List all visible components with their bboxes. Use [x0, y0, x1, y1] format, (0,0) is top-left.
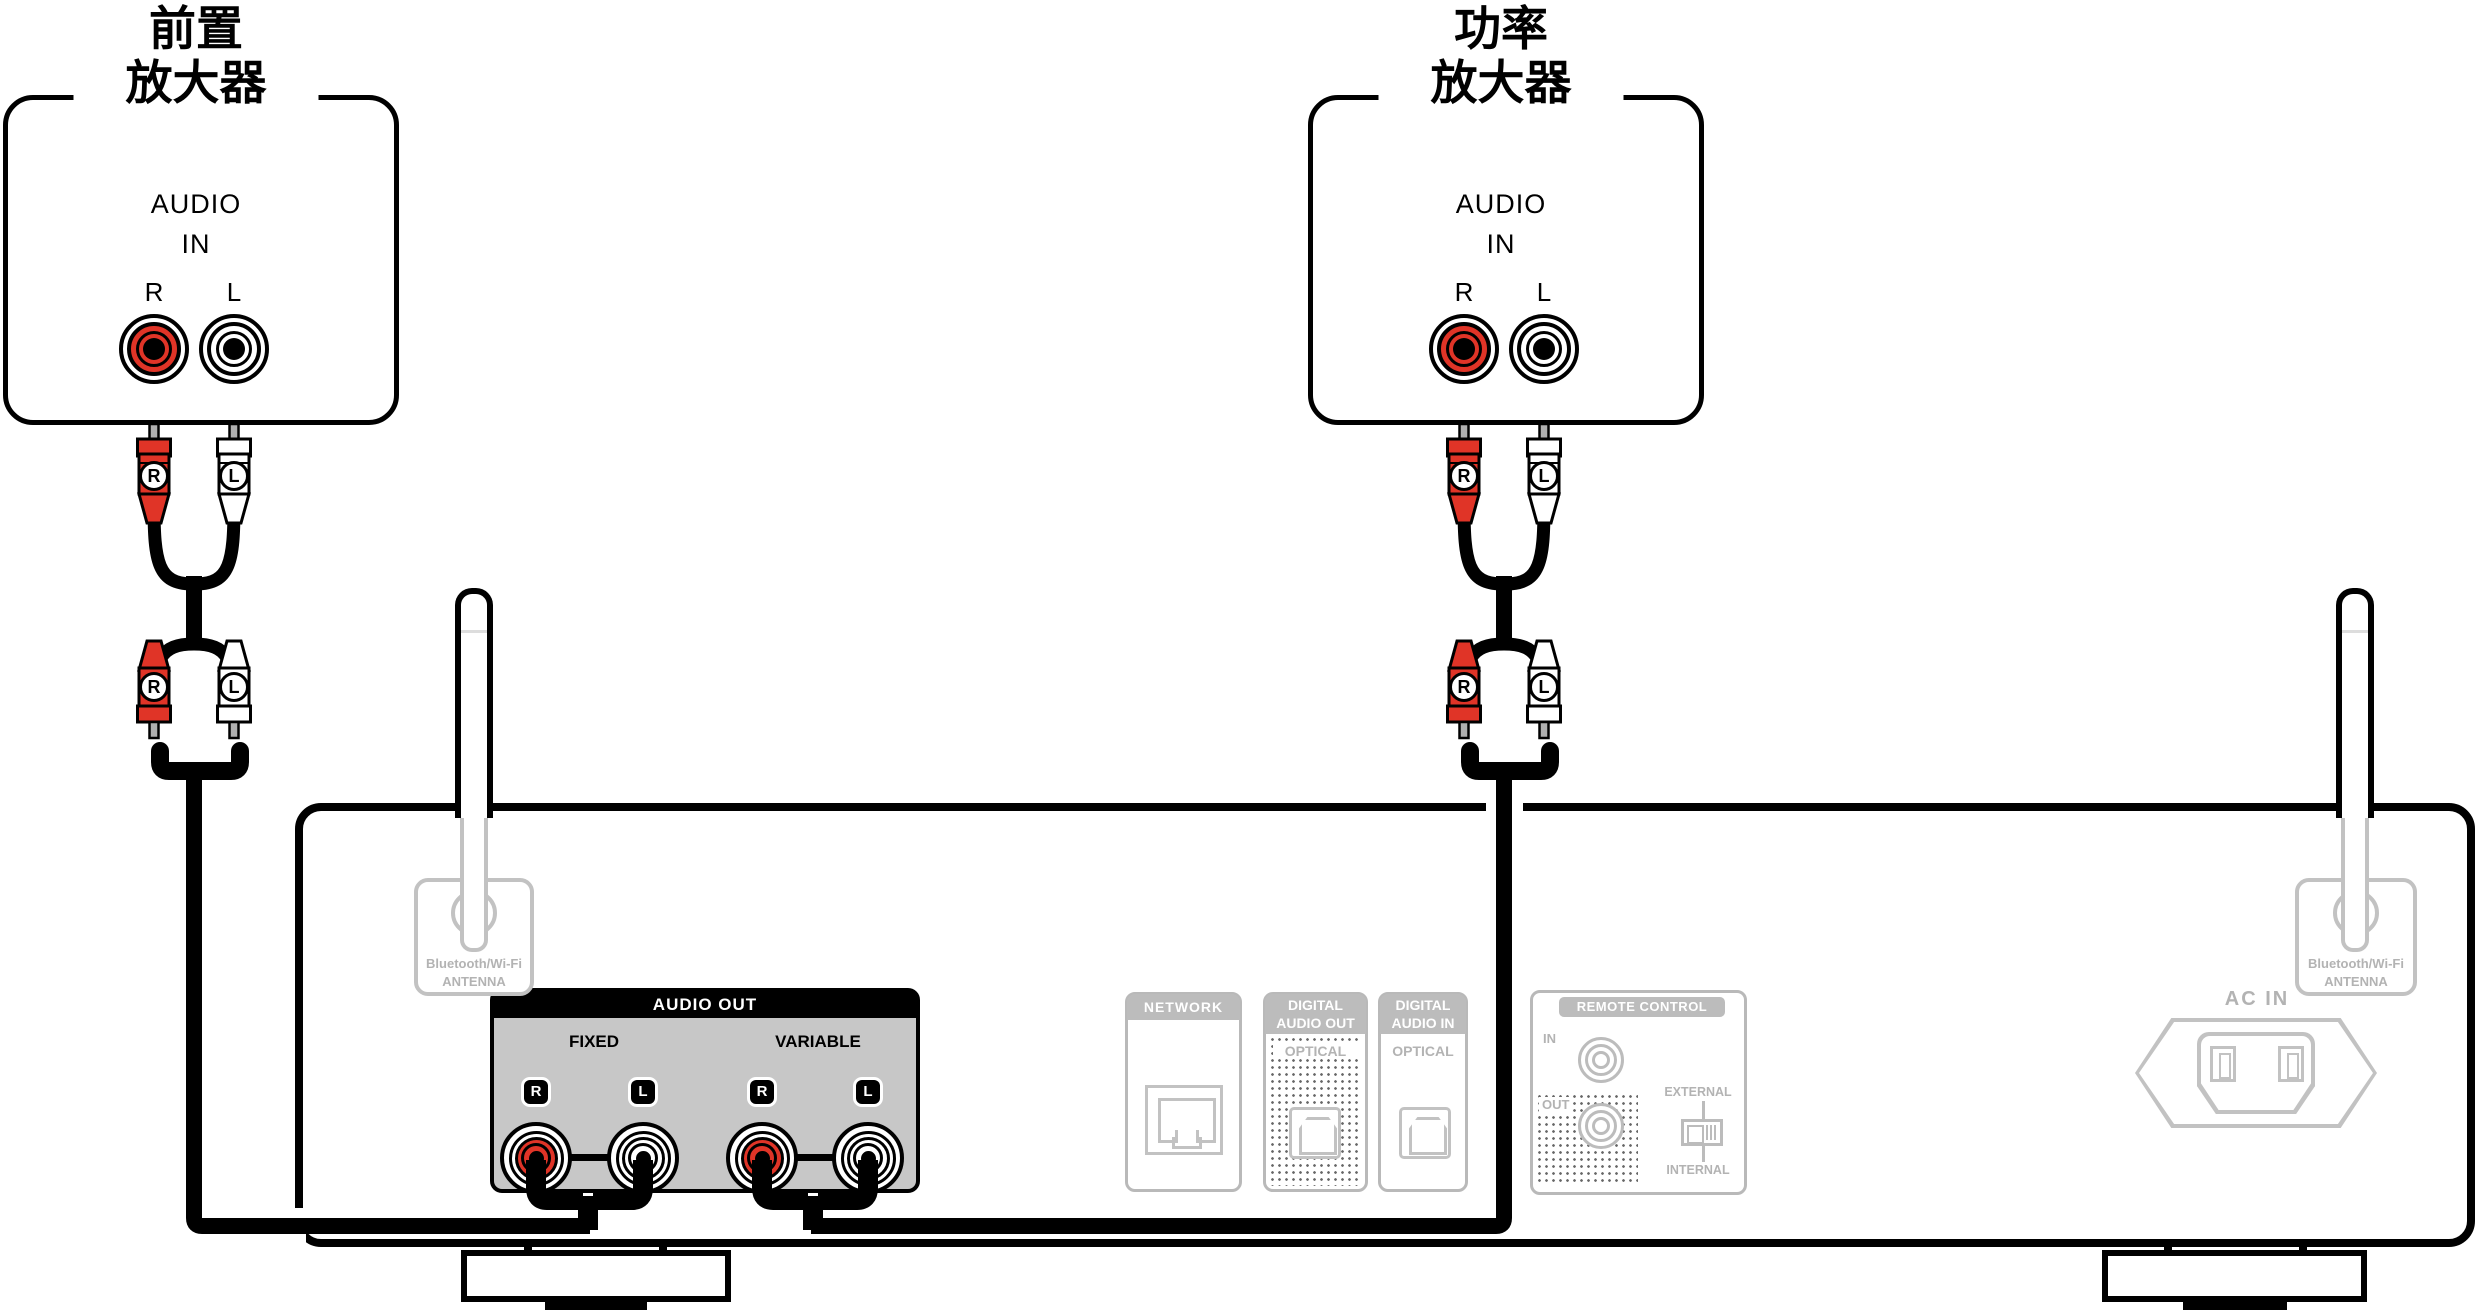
remote-external-label: EXTERNAL [1653, 1085, 1743, 1099]
power-amp-box [1308, 95, 1704, 425]
right-foot [2102, 1250, 2367, 1302]
power-amp-audio-in-r-jack[interactable] [1429, 314, 1499, 384]
svg-text:L: L [1539, 677, 1550, 697]
variable-l-jack[interactable] [832, 1122, 904, 1194]
fixed-l-badge: L [631, 1080, 655, 1104]
network-title: NETWORK [1127, 994, 1240, 1020]
remote-internal-label: INTERNAL [1653, 1163, 1743, 1177]
rca-plug-up-red-left[interactable]: R [138, 424, 171, 523]
digital-out-optical-label: OPTICAL [1273, 1043, 1358, 1059]
digital-audio-out-title: DIGITAL AUDIO OUT [1265, 994, 1366, 1034]
toslink-in-icon[interactable] [1399, 1107, 1451, 1159]
fixed-r-badge: R [524, 1080, 548, 1104]
digital-in-optical-label: OPTICAL [1381, 1043, 1465, 1059]
right-foot-base [2183, 1300, 2287, 1310]
rca-plug-up-white-right[interactable]: L [1528, 424, 1561, 523]
digital-audio-out-panel: DIGITAL AUDIO OUT OPTICAL [1263, 992, 1368, 1192]
wifi-antenna-left[interactable] [455, 588, 493, 818]
digital-audio-in-title: DIGITAL AUDIO IN [1380, 994, 1466, 1034]
variable-label: VARIABLE [758, 1032, 878, 1052]
variable-r-badge: R [750, 1080, 774, 1104]
ethernet-port-icon[interactable] [1145, 1085, 1223, 1155]
antenna-label-left-line2: ANTENNA [418, 974, 530, 989]
svg-text:R: R [148, 466, 161, 486]
preamp-audio-in-r-jack[interactable] [119, 314, 189, 384]
remote-out-jack[interactable] [1578, 1103, 1624, 1149]
preamp-title: 前置 放大器 [74, 2, 319, 110]
digital-audio-in-panel: DIGITAL AUDIO IN OPTICAL [1378, 992, 1468, 1192]
left-foot-base [545, 1300, 647, 1310]
svg-text:L: L [1539, 466, 1550, 486]
rca-plug-down-white-right[interactable]: L [1528, 641, 1561, 738]
variable-l-badge: L [856, 1080, 880, 1104]
ac-in-label: AC IN [2190, 988, 2324, 1011]
preamp-audio-label: AUDIO [151, 189, 242, 220]
power-amp-audio-in-l-jack[interactable] [1509, 314, 1579, 384]
svg-text:L: L [229, 466, 240, 486]
antenna-label-right-line1: Bluetooth/Wi-Fi [2299, 956, 2413, 971]
svg-text:R: R [1458, 677, 1471, 697]
remote-control-panel: REMOTE CONTROL IN OUT EXTERNAL INTERNAL [1530, 990, 1747, 1195]
ac-inlet[interactable] [2135, 1018, 2377, 1128]
svg-text:L: L [229, 677, 240, 697]
preamp-l-label: L [227, 277, 241, 308]
antenna-label-left-line1: Bluetooth/Wi-Fi [418, 956, 530, 971]
power-amp-l-label: L [1537, 277, 1551, 308]
rca-plug-down-white-left[interactable]: L [218, 641, 251, 738]
network-panel: NETWORK [1125, 992, 1242, 1192]
remote-control-title: REMOTE CONTROL [1559, 997, 1725, 1017]
power-amp-audio-label: AUDIO [1456, 189, 1547, 220]
switch-stem-bottom [1702, 1146, 1705, 1162]
toslink-out-icon[interactable] [1289, 1107, 1341, 1159]
antenna-ghost-left [460, 810, 488, 952]
preamp-audio-in-l-jack[interactable] [199, 314, 269, 384]
external-internal-switch[interactable] [1681, 1119, 1723, 1146]
rca-plug-down-red-left[interactable]: R [138, 641, 171, 738]
preamp-in-label: IN [182, 229, 211, 260]
antenna-ghost-right [2341, 810, 2369, 952]
remote-in-label: IN [1543, 1031, 1556, 1046]
fixed-label: FIXED [544, 1032, 644, 1052]
power-amp-title: 功率 放大器 [1379, 2, 1624, 110]
fixed-r-jack[interactable] [500, 1122, 572, 1194]
wifi-antenna-right[interactable] [2336, 588, 2374, 818]
rca-plug-down-red-right[interactable]: R [1448, 641, 1481, 738]
power-amp-r-label: R [1455, 277, 1474, 308]
switch-stem-top [1702, 1101, 1705, 1119]
antenna-label-right-line2: ANTENNA [2299, 974, 2413, 989]
preamp-box [3, 95, 399, 425]
fixed-l-jack[interactable] [607, 1122, 679, 1194]
rca-plug-up-red-right[interactable]: R [1448, 424, 1481, 523]
connection-diagram: AUDIO OUT FIXED VARIABLE R L R L Bluetoo… [0, 0, 2481, 1310]
remote-out-label: OUT [1539, 1097, 1572, 1112]
variable-r-jack[interactable] [726, 1122, 798, 1194]
svg-text:R: R [1458, 466, 1471, 486]
preamp-r-label: R [145, 277, 164, 308]
svg-text:R: R [148, 677, 161, 697]
rca-plug-up-white-left[interactable]: L [218, 424, 251, 523]
power-amp-in-label: IN [1487, 229, 1516, 260]
left-foot [461, 1250, 731, 1302]
remote-in-jack[interactable] [1578, 1037, 1624, 1083]
audio-out-header: AUDIO OUT [493, 991, 917, 1018]
